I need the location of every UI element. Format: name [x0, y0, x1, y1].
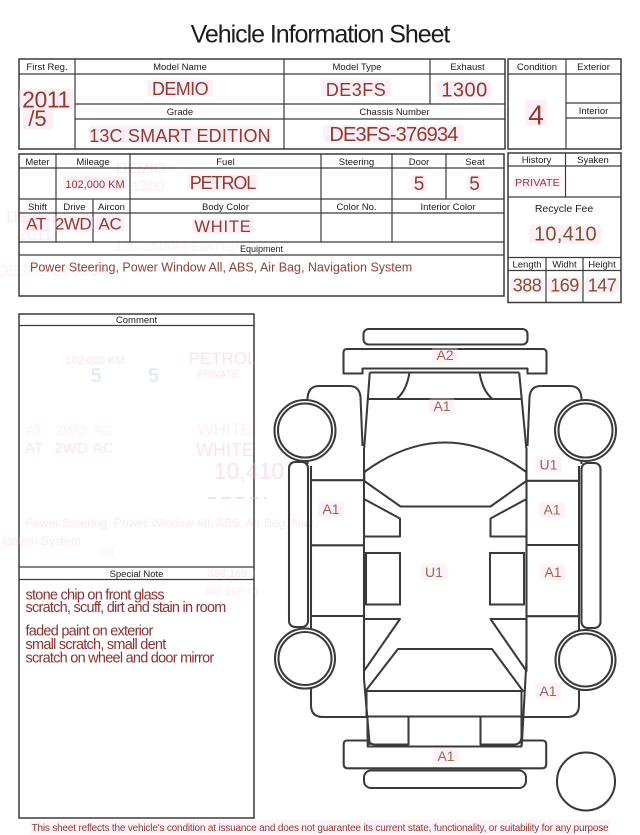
svg-text:Condition: Condition: [517, 62, 557, 73]
svg-text:1300: 1300: [131, 178, 164, 195]
svg-text:U1: U1: [425, 564, 443, 580]
svg-text:PRIVATE: PRIVATE: [197, 370, 239, 381]
svg-text:A1: A1: [322, 501, 339, 517]
svg-text:Body Color: Body Color: [202, 202, 249, 213]
svg-text:13C SMART EDITION: 13C SMART EDITION: [89, 126, 271, 146]
svg-text:Meter: Meter: [25, 157, 49, 168]
svg-text:AC: AC: [93, 422, 112, 438]
svg-text:Model Type: Model Type: [333, 62, 382, 73]
svg-text:2WD: 2WD: [55, 422, 86, 438]
svg-text:10,410: 10,410: [214, 458, 284, 484]
svg-text:DEMIO: DEMIO: [152, 79, 209, 99]
svg-text:Shift: Shift: [28, 202, 47, 213]
svg-text:13C SMART EDITION: 13C SMART EDITION: [116, 239, 245, 254]
svg-text:scratch on wheel and door mirr: scratch on wheel and door mirror: [26, 651, 215, 667]
svg-text:DE3FS-376934: DE3FS-376934: [329, 124, 458, 146]
svg-text:Color No.: Color No.: [336, 202, 376, 213]
svg-text:2WD: 2WD: [54, 440, 88, 457]
svg-text:WHITE: WHITE: [196, 440, 254, 460]
svg-text:388 169 1: 388 169 1: [208, 568, 257, 580]
svg-text:Steering: Steering: [339, 157, 374, 168]
svg-text:Power Steering, Power Window: Power Steering, Power Window All, ABS, A…: [30, 261, 412, 275]
svg-text:A1: A1: [437, 748, 454, 764]
svg-text:PETROL: PETROL: [190, 173, 257, 193]
svg-text:PRIVATE: PRIVATE: [515, 177, 560, 189]
svg-text:First Reg.: First Reg.: [26, 62, 67, 73]
svg-text:AC: AC: [93, 440, 114, 457]
svg-text:1300: 1300: [441, 80, 488, 102]
svg-text:WHITE: WHITE: [198, 420, 253, 439]
svg-text:388: 388: [513, 276, 542, 296]
svg-text:388 169 14: 388 169 14: [203, 586, 258, 598]
svg-text:102,000 KM: 102,000 KM: [65, 179, 124, 191]
svg-text:Equipment: Equipment: [240, 244, 284, 254]
svg-text:Chassis Number: Chassis Number: [359, 107, 429, 118]
svg-text:AT: AT: [25, 440, 43, 457]
svg-text:WHITE: WHITE: [194, 218, 251, 236]
svg-text:10,410: 10,410: [534, 224, 597, 246]
svg-text:A1: A1: [543, 502, 560, 518]
svg-text:Length: Length: [512, 260, 541, 271]
svg-text:Vehicle Information Sheet: Vehicle Information Sheet: [191, 21, 451, 49]
svg-text:Comment: Comment: [116, 315, 158, 326]
svg-text:Syaken: Syaken: [577, 155, 609, 166]
svg-text:5: 5: [469, 174, 480, 195]
svg-text:DE3FS: DE3FS: [326, 80, 387, 100]
svg-text:A1: A1: [539, 683, 556, 699]
svg-text:A2: A2: [436, 347, 453, 363]
svg-text:169: 169: [550, 276, 579, 296]
svg-text:AB: AB: [100, 547, 115, 559]
svg-text:AT: AT: [26, 422, 43, 438]
svg-text:Seat: Seat: [465, 157, 485, 168]
svg-text:Model Name: Model Name: [153, 62, 207, 73]
svg-text:igation System: igation System: [2, 534, 81, 548]
svg-text:4: 4: [528, 100, 544, 131]
svg-text:U1: U1: [540, 457, 558, 473]
svg-text:5: 5: [148, 366, 159, 387]
svg-text:Aircon: Aircon: [98, 202, 125, 213]
svg-text:Interior Color: Interior Color: [421, 202, 476, 213]
svg-text:Recycle Fee: Recycle Fee: [535, 203, 594, 215]
svg-text:Exhaust: Exhaust: [450, 62, 485, 73]
svg-text:Special Note: Special Note: [110, 569, 164, 580]
svg-text:5: 5: [414, 174, 425, 195]
svg-text:147: 147: [588, 276, 617, 296]
svg-text:2WD: 2WD: [55, 215, 92, 234]
svg-text:AT: AT: [26, 215, 46, 234]
svg-text:A1: A1: [433, 398, 450, 414]
svg-text:This sheet reflects the vehicl: This sheet reflects the vehicle's condit…: [32, 823, 609, 834]
svg-text:scratch, scuff, dirt and stain: scratch, scuff, dirt and stain in room: [26, 600, 227, 616]
svg-text:5: 5: [91, 366, 102, 387]
svg-text:/5: /5: [28, 106, 46, 131]
svg-text:Mileage: Mileage: [76, 157, 109, 168]
svg-text:Drive: Drive: [63, 202, 85, 213]
svg-text:History: History: [522, 155, 552, 166]
svg-text:PETROL: PETROL: [189, 349, 257, 368]
svg-text:AC: AC: [98, 215, 121, 234]
svg-text:Interior: Interior: [579, 106, 609, 117]
svg-text:Grade: Grade: [167, 107, 193, 118]
svg-text:Door: Door: [409, 157, 430, 168]
svg-text:Power Steering, Power Window: Power Steering, Power Window All, ABS, A…: [25, 516, 313, 530]
svg-text:Fuel: Fuel: [216, 157, 234, 168]
svg-text:A1: A1: [544, 564, 561, 580]
svg-text:Exterior: Exterior: [577, 62, 610, 73]
svg-text:Height: Height: [588, 260, 616, 271]
svg-text:Widht: Widht: [552, 260, 577, 271]
